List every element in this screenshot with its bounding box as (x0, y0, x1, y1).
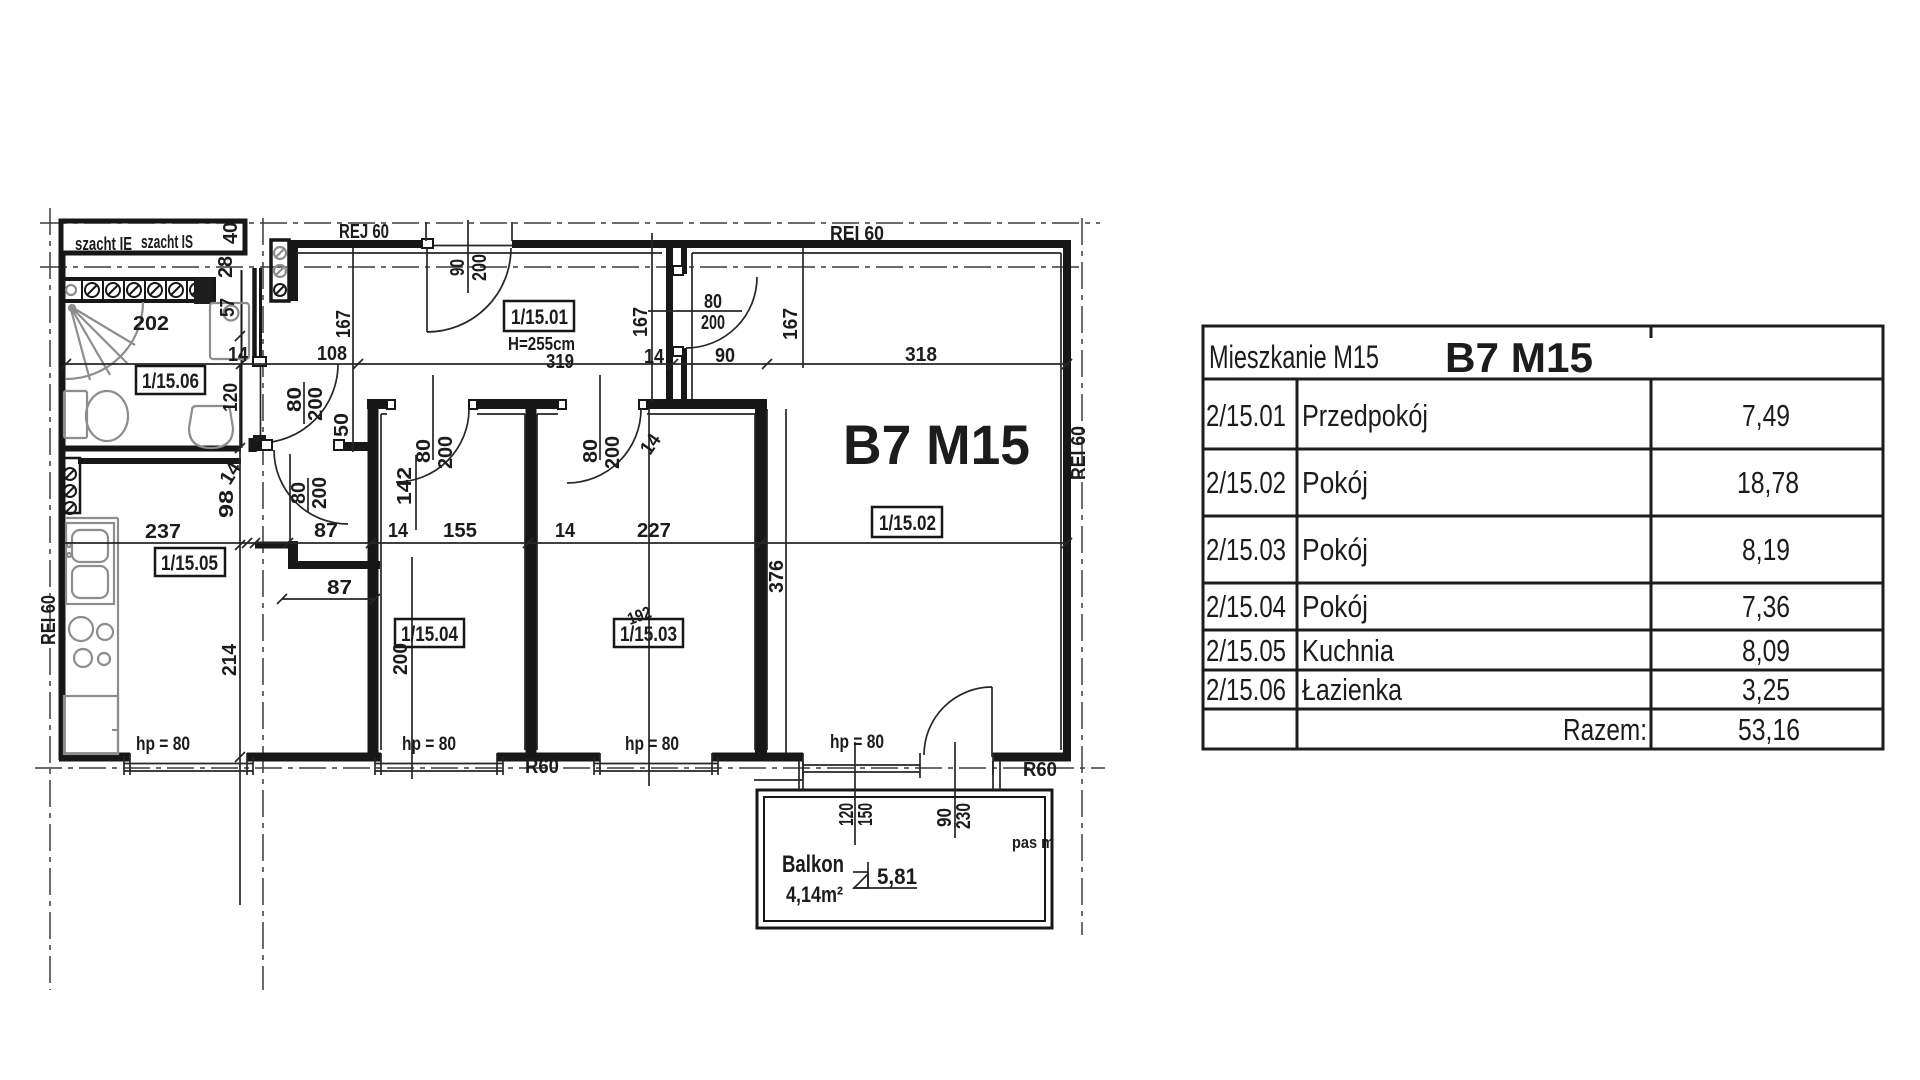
svg-text:Balkon: Balkon (782, 851, 844, 878)
svg-text:214: 214 (219, 643, 241, 676)
svg-text:200: 200 (435, 436, 457, 469)
svg-text:14: 14 (228, 344, 249, 366)
svg-text:87: 87 (314, 520, 338, 542)
svg-text:318: 318 (905, 344, 937, 366)
svg-text:Kuchnia: Kuchnia (1302, 633, 1395, 668)
svg-text:18,78: 18,78 (1737, 465, 1799, 500)
svg-text:2/15.04: 2/15.04 (1206, 589, 1286, 624)
svg-text:202: 202 (133, 313, 169, 335)
svg-text:REI 60: REI 60 (830, 223, 884, 245)
svg-text:2/15.01: 2/15.01 (1206, 398, 1286, 433)
svg-text:2/15.02: 2/15.02 (1206, 465, 1286, 500)
svg-text:57: 57 (217, 298, 239, 317)
svg-text:3,25: 3,25 (1742, 672, 1790, 707)
svg-text:200: 200 (390, 643, 412, 675)
svg-text:50: 50 (331, 413, 353, 437)
svg-text:120: 120 (220, 383, 242, 412)
svg-text:R60: R60 (525, 756, 559, 778)
svg-text:Przedpokój: Przedpokój (1302, 398, 1428, 433)
svg-text:1/15.06: 1/15.06 (142, 370, 199, 393)
svg-text:1/15.02: 1/15.02 (879, 512, 936, 535)
svg-text:B7 M15: B7 M15 (1445, 334, 1593, 381)
svg-text:90: 90 (715, 345, 735, 367)
svg-text:376: 376 (766, 560, 788, 593)
svg-text:R60: R60 (1023, 759, 1057, 781)
svg-text:80: 80 (284, 387, 306, 412)
svg-text:REJ 60: REJ 60 (339, 221, 389, 243)
svg-text:14: 14 (644, 346, 665, 368)
svg-text:14: 14 (555, 520, 576, 542)
svg-text:80: 80 (288, 482, 310, 504)
svg-text:Mieszkanie M15: Mieszkanie M15 (1209, 339, 1379, 375)
svg-text:Razem:: Razem: (1563, 712, 1647, 747)
svg-text:szacht IE: szacht IE (75, 234, 132, 254)
svg-text:2/15.03: 2/15.03 (1206, 532, 1286, 567)
svg-text:8,19: 8,19 (1742, 532, 1790, 567)
svg-text:REI 60: REI 60 (1068, 426, 1090, 480)
svg-text:REI 60: REI 60 (38, 595, 60, 645)
svg-text:53,16: 53,16 (1738, 712, 1800, 747)
svg-text:167: 167 (333, 310, 355, 338)
svg-text:150: 150 (855, 803, 877, 826)
svg-text:167: 167 (780, 308, 802, 340)
svg-text:Pokój: Pokój (1302, 589, 1368, 624)
svg-text:1/15.03: 1/15.03 (620, 623, 677, 646)
svg-text:80: 80 (704, 291, 722, 313)
svg-text:98: 98 (216, 490, 238, 518)
svg-text:7,36: 7,36 (1742, 589, 1790, 624)
svg-text:200: 200 (701, 312, 725, 334)
svg-text:hp = 80: hp = 80 (830, 732, 884, 753)
svg-text:szacht IS: szacht IS (141, 232, 193, 252)
svg-text:H=255cm: H=255cm (508, 334, 575, 354)
svg-text:167: 167 (630, 307, 652, 337)
svg-text:200: 200 (305, 387, 327, 421)
svg-text:B7 M15: B7 M15 (843, 413, 1030, 476)
svg-text:155: 155 (443, 520, 477, 542)
svg-text:8,09: 8,09 (1742, 633, 1790, 668)
svg-text:142: 142 (394, 467, 416, 505)
svg-text:Łazienka: Łazienka (1302, 672, 1403, 707)
svg-text:200: 200 (602, 436, 624, 469)
svg-text:80: 80 (413, 439, 435, 463)
svg-text:hp = 80: hp = 80 (402, 734, 456, 755)
svg-text:2/15.05: 2/15.05 (1206, 633, 1286, 668)
svg-text:200: 200 (469, 254, 491, 281)
svg-text:2/15.06: 2/15.06 (1206, 672, 1286, 707)
svg-text:1/15.01: 1/15.01 (511, 306, 568, 329)
svg-text:319: 319 (546, 351, 574, 373)
svg-text:80: 80 (580, 439, 602, 463)
svg-text:1/15.04: 1/15.04 (401, 623, 458, 646)
svg-text:hp = 80: hp = 80 (625, 734, 679, 755)
svg-text:1/15.05: 1/15.05 (161, 552, 218, 575)
svg-text:pas m: pas m (1012, 833, 1054, 852)
svg-text:90: 90 (447, 259, 469, 276)
svg-text:5,81: 5,81 (877, 864, 917, 889)
svg-text:230: 230 (953, 803, 975, 829)
svg-text:Pokój: Pokój (1302, 532, 1368, 567)
svg-text:200: 200 (309, 477, 331, 509)
svg-text:108: 108 (317, 343, 347, 365)
svg-text:4,14m²: 4,14m² (786, 882, 843, 907)
svg-text:40: 40 (220, 222, 242, 244)
svg-text:Pokój: Pokój (1302, 465, 1368, 500)
svg-text:28: 28 (215, 256, 237, 278)
svg-text:237: 237 (145, 521, 181, 543)
svg-text:87: 87 (327, 577, 352, 599)
svg-text:14: 14 (388, 520, 409, 542)
svg-text:7,49: 7,49 (1742, 398, 1790, 433)
svg-text:hp = 80: hp = 80 (136, 734, 190, 755)
svg-text:227: 227 (637, 520, 671, 542)
